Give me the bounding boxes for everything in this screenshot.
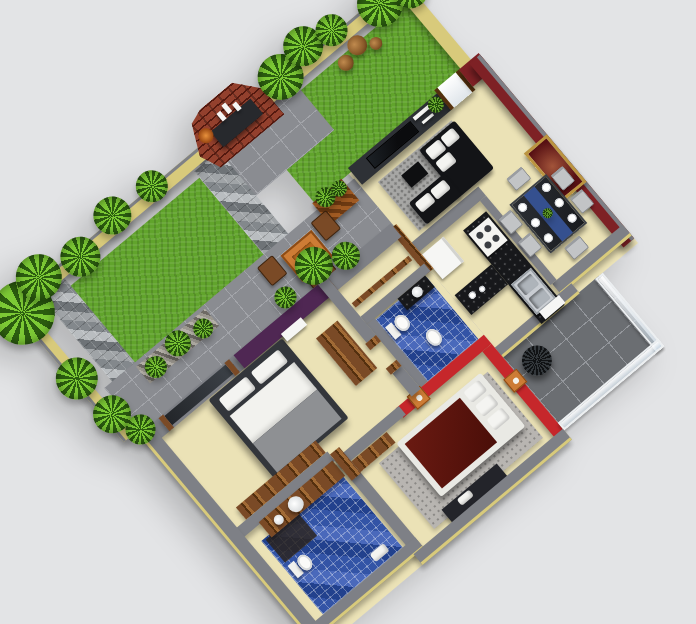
render-canvas	[0, 0, 696, 624]
floor-plan-scene	[0, 0, 696, 624]
scene-shadow-wrap	[0, 0, 696, 624]
